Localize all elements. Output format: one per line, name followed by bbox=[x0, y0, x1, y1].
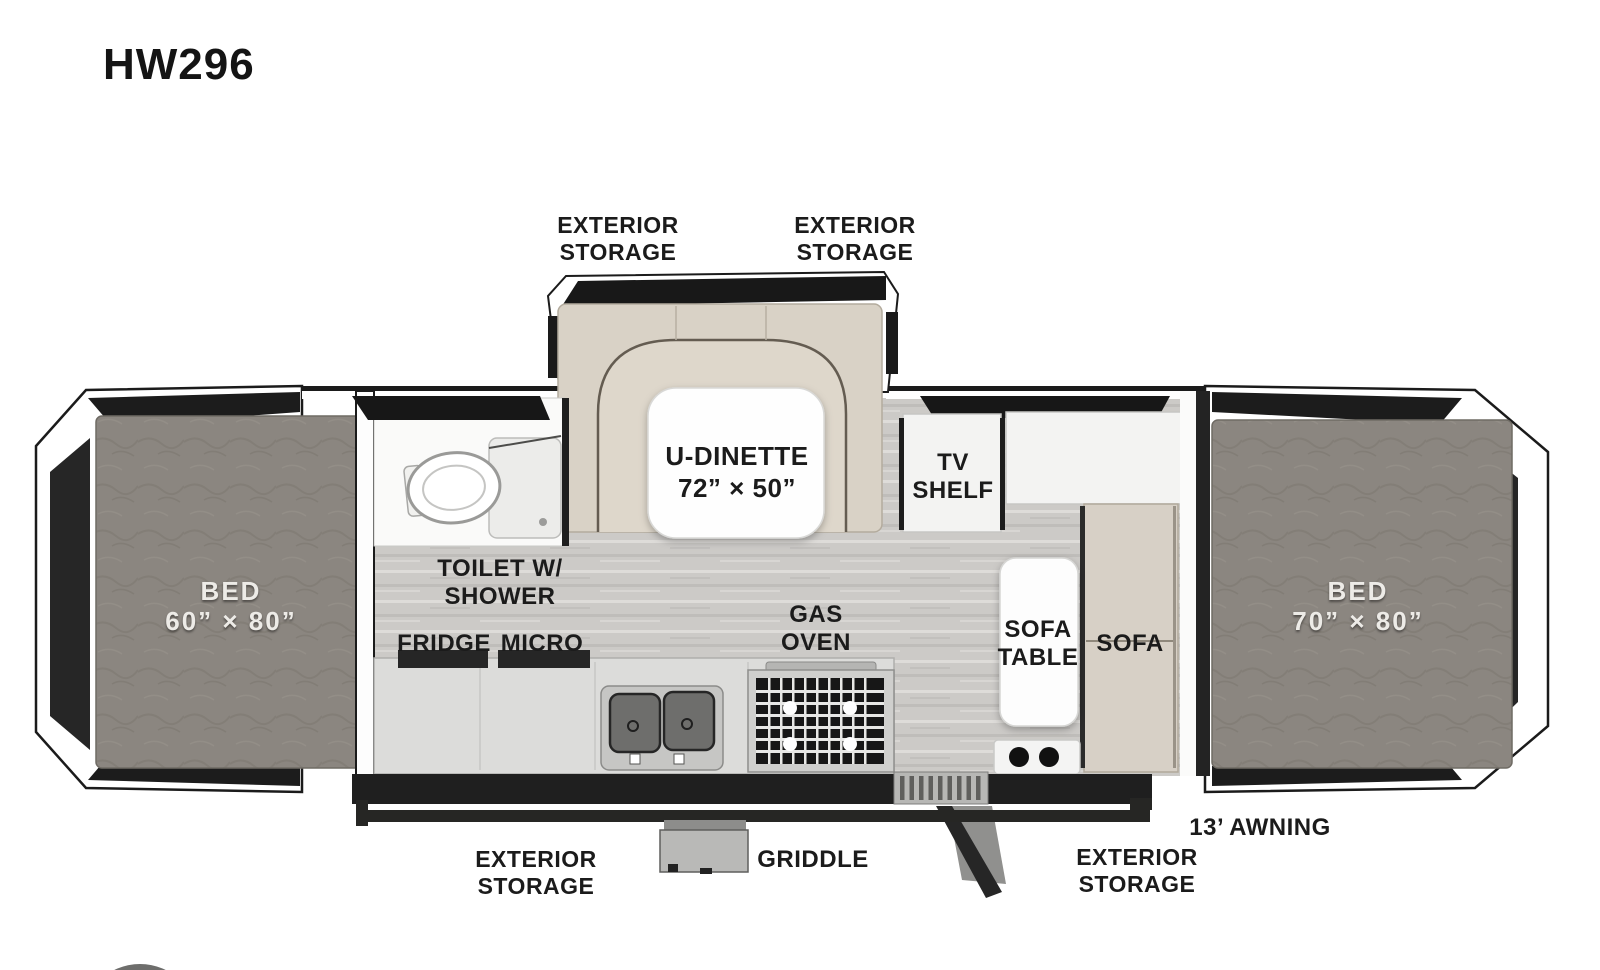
label-fridge: FRIDGE bbox=[397, 630, 491, 658]
gas-oven bbox=[748, 662, 894, 772]
floorplan-canvas: HW296 EXTERIOR STORAGE EXTERIOR STORAGE … bbox=[0, 0, 1600, 970]
label-sofa-table: SOFA TABLE bbox=[998, 616, 1079, 672]
label-line: SHELF bbox=[912, 477, 993, 505]
label-line: SOFA bbox=[998, 616, 1079, 644]
left-wall bbox=[356, 391, 374, 776]
label-line: 72” × 50” bbox=[665, 472, 808, 504]
label-line: SHOWER bbox=[437, 583, 562, 611]
window-band-left bbox=[352, 396, 550, 420]
label-bed-left: BED 60” × 80” bbox=[165, 576, 296, 636]
label-bed-right: BED 70” × 80” bbox=[1292, 576, 1423, 636]
label-awning: 13’ AWNING bbox=[1189, 814, 1330, 842]
label-line: EXTERIOR bbox=[1076, 844, 1198, 871]
label-line: BED bbox=[165, 576, 296, 606]
label-toilet-shower: TOILET W/ SHOWER bbox=[437, 555, 562, 611]
label-griddle: GRIDDLE bbox=[757, 846, 869, 874]
label-line: OVEN bbox=[781, 629, 851, 657]
bottom-wall bbox=[352, 774, 1152, 804]
label-sofa: SOFA bbox=[1096, 630, 1163, 658]
label-u-dinette: U-DINETTE 72” × 50” bbox=[665, 440, 808, 504]
label-line: EXTERIOR bbox=[475, 846, 597, 873]
label-line: EXTERIOR bbox=[794, 212, 916, 239]
label-micro: MICRO bbox=[501, 630, 584, 658]
label-line: TV bbox=[912, 449, 993, 477]
label-line: TABLE bbox=[998, 644, 1079, 672]
label-gas-oven: GAS OVEN bbox=[781, 601, 851, 657]
right-counter bbox=[1006, 412, 1202, 504]
label-line: 70” × 80” bbox=[1292, 606, 1423, 636]
label-exterior-storage-bottom-right: EXTERIOR STORAGE bbox=[1076, 844, 1198, 898]
label-line: U-DINETTE bbox=[665, 440, 808, 472]
entry-steps bbox=[894, 772, 988, 804]
label-exterior-storage-top-left: EXTERIOR STORAGE bbox=[557, 212, 679, 266]
label-line: STORAGE bbox=[475, 873, 597, 900]
label-line: STORAGE bbox=[1076, 871, 1198, 898]
kitchen-sink bbox=[601, 686, 723, 770]
label-line: STORAGE bbox=[794, 239, 916, 266]
label-line: 60” × 80” bbox=[165, 606, 296, 636]
label-line: GAS bbox=[781, 601, 851, 629]
label-line: TOILET W/ bbox=[437, 555, 562, 583]
toilet-room bbox=[374, 398, 569, 546]
right-wall bbox=[1180, 391, 1210, 776]
griddle-unit bbox=[660, 820, 748, 874]
label-tv-shelf: TV SHELF bbox=[912, 449, 993, 505]
logo-circle bbox=[82, 964, 198, 970]
label-line: EXTERIOR bbox=[557, 212, 679, 239]
stove-cabinet bbox=[994, 740, 1080, 774]
label-exterior-storage-top-right: EXTERIOR STORAGE bbox=[794, 212, 916, 266]
label-line: BED bbox=[1292, 576, 1423, 606]
label-line: STORAGE bbox=[557, 239, 679, 266]
model-title: HW296 bbox=[103, 40, 255, 90]
label-exterior-storage-bottom-left: EXTERIOR STORAGE bbox=[475, 846, 597, 900]
